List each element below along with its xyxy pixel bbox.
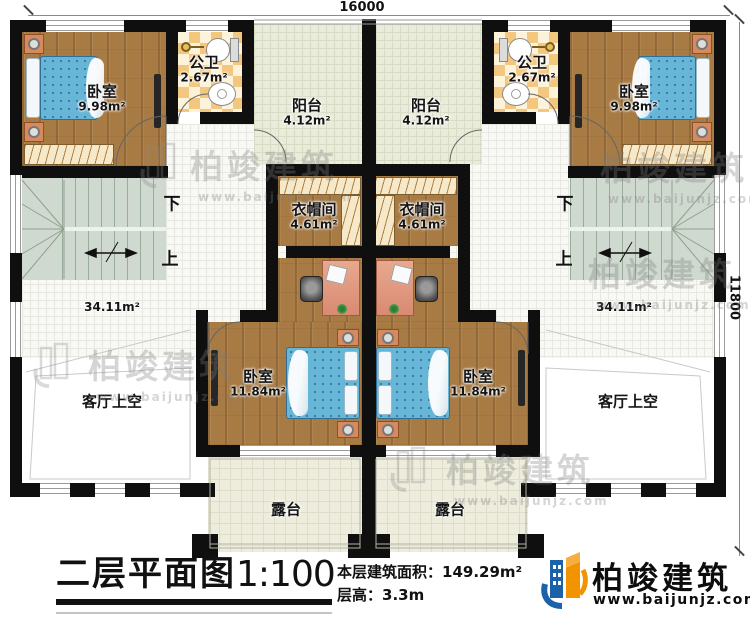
living-void-left [22,358,196,483]
window [612,20,690,32]
room-label-closet: 衣帽间 4.61m² [290,201,337,232]
toilet-icon [230,38,239,62]
room-area: 34.11m² [596,301,652,315]
bed-sheet [288,350,308,416]
wall [528,310,540,322]
floor-height-value: 3.3m [382,586,424,604]
pillow [696,58,710,118]
window [10,302,22,357]
tv [211,350,218,406]
room-name: 露台 [271,501,301,518]
room-area: 2.67m² [508,72,555,86]
wall [10,20,22,497]
room-label-closet: 衣帽间 4.61m² [398,201,445,232]
window [714,175,726,253]
shower-icon [181,42,191,52]
sink-icon [502,82,530,106]
balcony-floor-right [376,24,482,164]
window [40,483,70,497]
shower-arm [532,46,545,48]
window [150,483,180,497]
shower-arm [191,46,204,48]
window [508,20,550,32]
window [186,20,228,32]
nightstand [24,34,44,54]
wall [374,164,458,176]
balcony-floor-left [254,24,362,164]
nightstand [24,122,44,142]
pillow [378,385,392,415]
plant-icon [389,304,399,314]
floor-info: 本层建筑面积：149.29m² 层高：3.3m [337,561,522,608]
wall [10,166,168,178]
wall [196,322,208,457]
room-label-bathroom: 公卫 2.67m² [508,54,555,85]
closet-rack-left [279,177,361,195]
dimension-tick [723,5,734,16]
room-label-bedroom: 卧室 11.84m² [450,368,506,399]
living-void-right [540,358,714,483]
wall [374,246,450,258]
stair-mid-landing-line [570,227,674,231]
closet-rack-right [375,195,395,246]
room-label-bedroom: 卧室 9.98m² [610,83,657,114]
title-underline [56,599,332,605]
shower-icon [545,42,555,52]
floor-area-label: 本层建筑面积： [337,563,442,581]
room-label-balcony: 阳台 4.12m² [283,97,330,128]
room-name: 露台 [435,501,465,518]
window [46,20,124,32]
room-label-bedroom: 卧室 11.84m² [230,368,286,399]
wardrobe-right [622,144,712,165]
room-label-terrace: 露台 [435,501,465,518]
nightstand [692,122,712,142]
title-underline-thin [56,612,332,614]
wall [266,164,278,254]
room-label-bedroom: 卧室 9.98m² [78,83,125,114]
wall [558,32,570,124]
wall [240,310,278,322]
window [714,302,726,357]
wall [278,164,362,176]
pillow [344,385,358,415]
room-label-living-void: 客厅上空 [82,393,142,410]
wardrobe-left [24,144,114,165]
room-name: 卧室 [450,368,506,385]
chair [300,276,323,302]
wall [714,20,726,497]
room-label-bathroom: 公卫 2.67m² [180,54,227,85]
room-name: 客厅上空 [82,393,142,410]
hall-area-label: 34.11m² [84,301,140,315]
room-name: 阳台 [283,97,330,114]
wall [482,20,494,124]
party-wall [362,19,376,558]
nightstand [337,421,359,438]
wall [200,112,254,124]
nightstand [377,421,399,438]
window [556,483,586,497]
closet-rack-right [375,177,457,195]
pillow [344,351,358,381]
stairs-up-label: 上 [556,245,573,270]
room-area: 9.98m² [610,101,657,115]
tv [518,350,525,406]
room-name: 卧室 [78,83,125,100]
plant-icon [337,304,347,314]
stairs-up-label: 上 [162,245,179,270]
sliding-door-window [386,445,496,457]
room-area: 9.98m² [78,101,125,115]
stair-mid-landing-line [62,227,166,231]
wall [458,310,496,322]
wall [286,246,362,258]
top-dimension-line [28,15,730,16]
room-label-balcony: 阳台 4.12m² [402,97,449,128]
plan-scale: 1:100 [236,556,335,594]
pillow [26,58,40,118]
bed-sheet [428,350,448,416]
toilet-icon [499,38,508,62]
room-name: 衣帽间 [398,201,445,218]
room-area: 11.84m² [230,386,286,400]
window [95,483,125,497]
terrace-pillar [348,534,390,558]
company-logo-website: www.baijunjz.com [593,592,750,608]
stairs-down-label: 下 [164,190,181,215]
plan-title-text: 二层平面图 [56,556,236,593]
room-name: 公卫 [180,54,227,71]
tv [154,74,161,128]
wall [482,112,536,124]
window [611,483,641,497]
plan-title: 二层平面图 1:100 [56,556,335,594]
room-area: 2.67m² [180,72,227,86]
sliding-door-window [240,445,350,457]
right-dimension-label: 11800 [727,275,742,321]
room-name: 阳台 [402,97,449,114]
room-name: 卧室 [610,83,657,100]
tv [575,74,582,128]
floor-area-line: 本层建筑面积：149.29m² [337,561,522,584]
floor-plan-page: 16000 11800 [0,0,750,622]
wall [568,166,726,178]
room-area: 4.12m² [283,115,330,129]
company-logo-icon [540,550,588,610]
pillow [378,351,392,381]
window [10,175,22,253]
chair [415,276,438,302]
nightstand [692,34,712,54]
dimension-tick [23,5,34,16]
room-area: 4.61m² [290,219,337,233]
floor-area-value: 149.29m² [442,563,522,581]
floor-height-label: 层高： [337,586,382,604]
window [666,483,696,497]
wall [196,310,208,322]
room-area: 11.84m² [450,386,506,400]
sink-icon [208,82,236,106]
closet-rack-left [341,195,361,246]
room-name: 卧室 [230,368,286,385]
stairs-down-label: 下 [557,190,574,215]
hall-area-label: 34.11m² [596,301,652,315]
room-name: 客厅上空 [598,393,658,410]
nightstand [337,329,359,346]
wall [166,32,178,124]
wall [242,20,254,124]
room-name: 衣帽间 [290,201,337,218]
wall [458,164,470,254]
nightstand [377,329,399,346]
room-label-terrace: 露台 [271,501,301,518]
room-area: 34.11m² [84,301,140,315]
floor-height-line: 层高：3.3m [337,584,522,607]
room-area: 4.12m² [402,115,449,129]
room-name: 公卫 [508,54,555,71]
wall [528,322,540,457]
room-label-living-void: 客厅上空 [598,393,658,410]
room-area: 4.61m² [398,219,445,233]
top-dimension-label: 16000 [330,0,394,15]
